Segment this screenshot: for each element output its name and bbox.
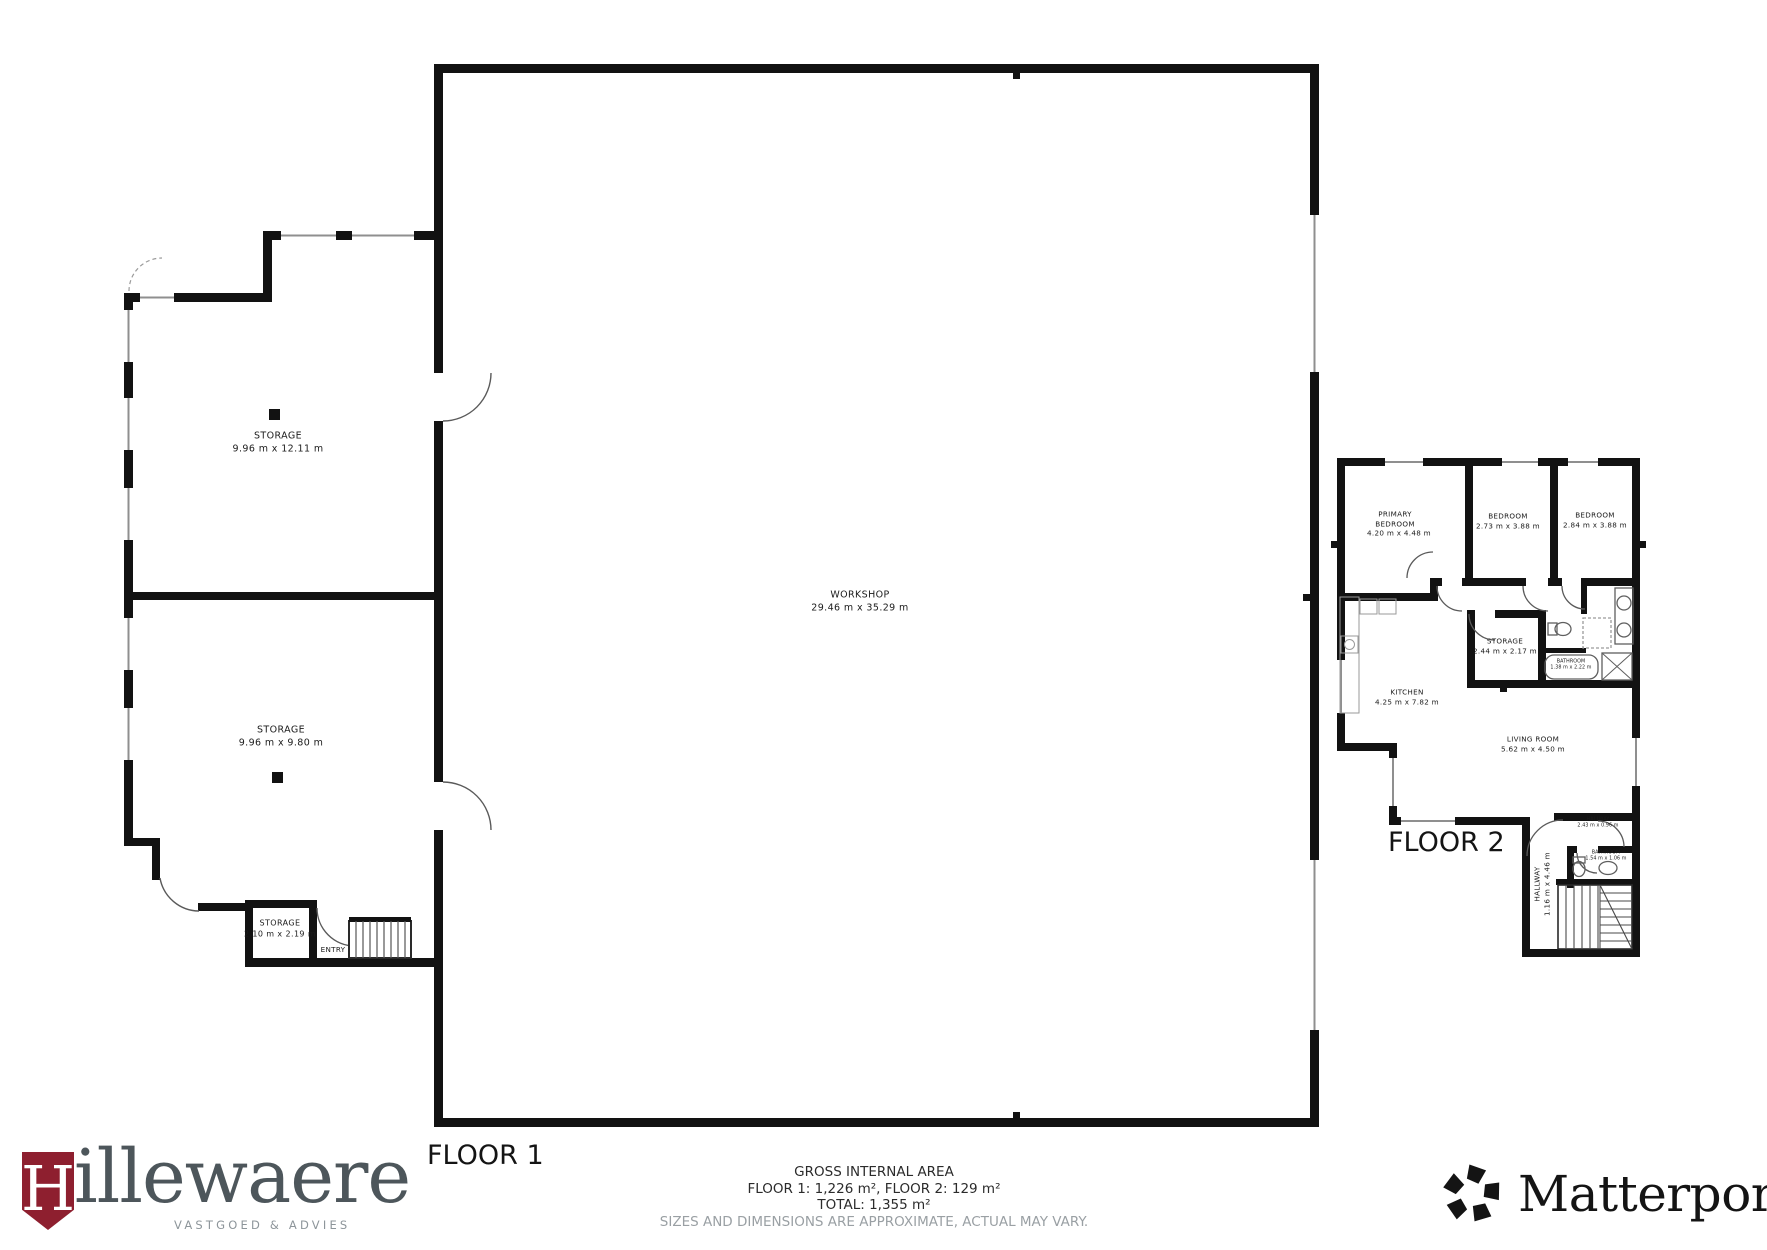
room-name: BEDROOM <box>1563 510 1627 520</box>
room-dims: 9.96 m x 9.80 m <box>239 737 324 750</box>
room-label-bathroom-small: BATHROOM 1.54 m x 1.06 m <box>1585 851 1626 864</box>
hillewaere-wordmark: illewaere <box>74 1132 410 1222</box>
floor2-title: FLOOR 2 <box>1388 827 1505 858</box>
floor1-title: FLOOR 1 <box>427 1140 544 1171</box>
floorplan-page: STORAGE 9.96 m x 12.11 m STORAGE 9.96 m … <box>0 0 1767 1250</box>
room-name: STORAGE <box>1473 636 1537 646</box>
room-label-storage-bottom: STORAGE 9.96 m x 9.80 m <box>239 725 324 750</box>
room-dims: 2.73 m x 3.88 m <box>1476 521 1540 531</box>
area-summary-title: GROSS INTERNAL AREA <box>660 1164 1088 1181</box>
room-dims: 4.20 m x 4.48 m <box>1367 529 1431 539</box>
area-summary-disclaimer: SIZES AND DIMENSIONS ARE APPROXIMATE, AC… <box>660 1214 1088 1231</box>
room-dims: 1.54 m x 1.06 m <box>1585 857 1626 863</box>
room-dims: 1.16 m x 4.46 m <box>1542 852 1552 916</box>
room-label-workshop: WORKSHOP 29.46 m x 35.29 m <box>811 590 908 615</box>
room-label-hall-small: HALLWAY 2.43 m x 0.96 m <box>1577 818 1618 831</box>
room-dims: 29.46 m x 35.29 m <box>811 602 908 615</box>
floor1-dashed-arcs <box>129 258 162 291</box>
room-label-hallway: HALLWAY 1.16 m x 4.46 m <box>1532 852 1551 916</box>
room-name: PRIMARY BEDROOM <box>1367 510 1423 529</box>
matterport-wordmark: Matterport <box>1518 1162 1767 1226</box>
room-name: KITCHEN <box>1375 687 1439 697</box>
room-label-living-room: LIVING ROOM 5.62 m x 4.50 m <box>1501 734 1565 753</box>
floor2-markers <box>1331 541 1646 692</box>
room-label-bedroom-right: BEDROOM 2.84 m x 3.88 m <box>1563 510 1627 529</box>
floor1-plan-drawing <box>0 0 1767 1250</box>
room-label-bathroom-main: BATHROOM 1.38 m x 2.22 m <box>1550 660 1591 673</box>
hillewaere-initial: H <box>21 1152 75 1226</box>
area-summary-floors: FLOOR 1: 1,226 m², FLOOR 2: 129 m² <box>660 1181 1088 1198</box>
floor1-doors <box>160 373 491 946</box>
room-label-storage-small: STORAGE 2.10 m x 2.19 m <box>244 919 316 940</box>
room-label-bedroom-middle: BEDROOM 2.73 m x 3.88 m <box>1476 511 1540 530</box>
floor1-stairs <box>349 917 411 958</box>
room-name: STORAGE <box>233 431 324 444</box>
hillewaere-shield-icon: H <box>22 1152 74 1230</box>
room-name: HALLWAY <box>1532 852 1542 916</box>
floor2-stairs <box>1558 885 1632 949</box>
matterport-icon <box>1440 1162 1504 1226</box>
room-label-primary-bedroom: PRIMARY BEDROOM 4.20 m x 4.48 m <box>1367 510 1431 539</box>
room-name: STORAGE <box>239 725 324 738</box>
area-summary-total: TOTAL: 1,355 m² <box>660 1197 1088 1214</box>
floor1-walls <box>124 64 1319 1127</box>
room-dims: 9.96 m x 12.11 m <box>233 443 324 456</box>
room-dims: 2.10 m x 2.19 m <box>244 929 316 940</box>
room-dims: 2.84 m x 3.88 m <box>1563 520 1627 530</box>
room-label-storage-top: STORAGE 9.96 m x 12.11 m <box>233 431 324 456</box>
room-dims: 5.62 m x 4.50 m <box>1501 744 1565 754</box>
room-name: ENTRY <box>321 945 346 955</box>
matterport-logo: Matterport ® <box>1440 1162 1767 1226</box>
hillewaere-tagline: VASTGOED & ADVIES <box>174 1218 350 1232</box>
room-name: BEDROOM <box>1476 511 1540 521</box>
room-label-storage-f2: STORAGE 2.44 m x 2.17 m <box>1473 636 1537 655</box>
room-dims: 1.38 m x 2.22 m <box>1550 666 1591 672</box>
room-dims: 2.43 m x 0.96 m <box>1577 824 1618 830</box>
room-label-kitchen: KITCHEN 4.25 m x 7.82 m <box>1375 687 1439 706</box>
room-name: LIVING ROOM <box>1501 734 1565 744</box>
area-summary: GROSS INTERNAL AREA FLOOR 1: 1,226 m², F… <box>660 1164 1088 1230</box>
floor2-plan-drawing <box>0 0 1767 1250</box>
floor1-markers <box>269 73 1310 1118</box>
room-name: WORKSHOP <box>811 590 908 603</box>
room-label-entry: ENTRY <box>321 945 346 955</box>
room-dims: 4.25 m x 7.82 m <box>1375 697 1439 707</box>
room-dims: 2.44 m x 2.17 m <box>1473 646 1537 656</box>
room-name: STORAGE <box>244 919 316 930</box>
floor1-windows <box>129 215 1315 1030</box>
